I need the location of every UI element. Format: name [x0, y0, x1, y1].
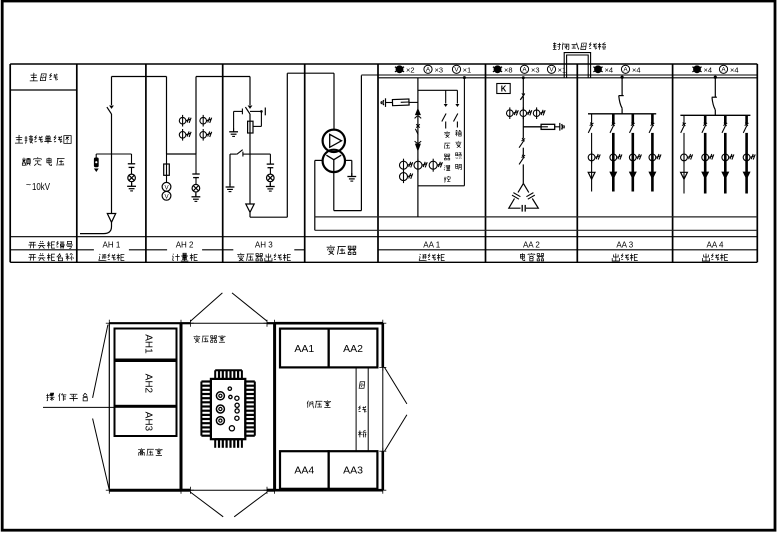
svg-text:~: ~ [26, 180, 31, 190]
svg-text:A: A [426, 67, 431, 74]
svg-text:10kV: 10kV [32, 182, 50, 193]
svg-text:×3: ×3 [435, 65, 444, 74]
svg-text:×4: ×4 [730, 65, 739, 74]
svg-text:AA2: AA2 [343, 343, 363, 355]
svg-text:AA 1: AA 1 [423, 241, 440, 250]
svg-text:A: A [522, 67, 527, 74]
svg-text:AH 3: AH 3 [255, 241, 273, 250]
svg-text:V: V [454, 67, 459, 74]
svg-text:×3: ×3 [531, 65, 540, 74]
svg-text:AA 3: AA 3 [616, 241, 633, 250]
svg-text:AH1: AH1 [143, 334, 154, 354]
svg-text:×4: ×4 [704, 65, 713, 74]
svg-text:×2: ×2 [406, 65, 415, 74]
svg-text:K: K [501, 84, 507, 93]
svg-text:AA4: AA4 [294, 465, 314, 477]
svg-text:AA 4: AA 4 [707, 241, 724, 250]
svg-text:×1: ×1 [463, 65, 472, 74]
svg-text:V: V [549, 67, 554, 74]
svg-text:×1: ×1 [558, 65, 567, 74]
svg-text:A: A [721, 67, 726, 74]
svg-text:A: A [623, 67, 628, 74]
svg-text:AH3: AH3 [143, 412, 154, 432]
svg-text:×4: ×4 [605, 65, 614, 74]
svg-text:AA 2: AA 2 [523, 241, 540, 250]
svg-text:×4: ×4 [632, 65, 641, 74]
svg-text:AH2: AH2 [143, 374, 154, 394]
svg-text:AA1: AA1 [294, 343, 314, 355]
svg-text:AH 2: AH 2 [176, 241, 194, 250]
svg-text:AH 1: AH 1 [103, 241, 121, 250]
svg-text:AA3: AA3 [343, 465, 363, 477]
svg-text:×8: ×8 [504, 65, 513, 74]
